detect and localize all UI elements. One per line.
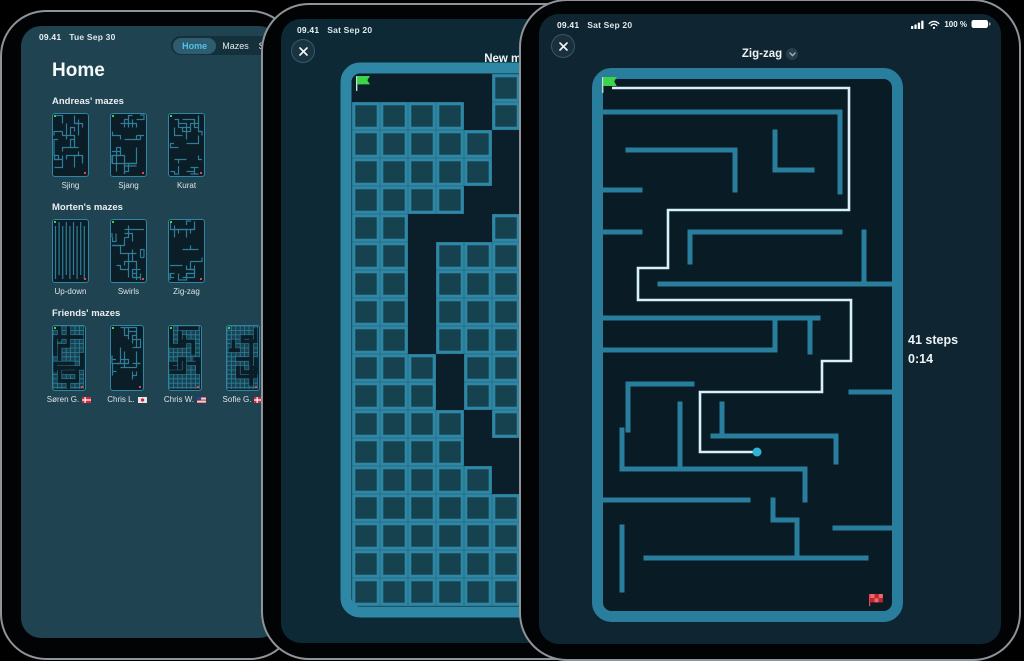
maze-preview-icon: [227, 326, 258, 389]
maze-thumbnail-art: [110, 325, 144, 391]
maze-thumbnail-label: Søren G.: [47, 395, 91, 404]
home-content: Home Andreas' mazesSjingSjangKuratMorten…: [52, 60, 275, 416]
maze-thumbnail-art: [168, 325, 202, 391]
maze-thumbnail-item[interactable]: Sjang: [110, 113, 147, 190]
maze-preview-icon: [111, 220, 145, 281]
maze-thumbnail-item[interactable]: Zig-zag: [168, 219, 205, 296]
thumbnail-row: SjingSjangKurat: [52, 113, 275, 190]
maze-thumbnail-art: [226, 325, 260, 391]
maze-thumbnail-item[interactable]: Up-down: [52, 219, 89, 296]
maze-thumbnail-label: Chris L.: [107, 395, 147, 404]
status-date: Tue Sep 30: [69, 32, 115, 42]
maze-thumbnail-item[interactable]: Sjing: [52, 113, 89, 190]
play-screen: 09.41 Sat Sep 20 100 %: [539, 14, 1001, 644]
maze-thumbnail-art: [110, 219, 147, 283]
section-header: Andreas' mazes: [52, 96, 275, 107]
page-title: Home: [52, 60, 275, 82]
game-stats: 41 steps 0:14: [908, 331, 958, 369]
maze-thumbnail-label: Sjing: [62, 181, 80, 190]
status-time: 09.41: [39, 32, 61, 42]
maze-preview-icon: [169, 114, 203, 175]
status-bar: 09.41 Tue Sep 30: [39, 32, 116, 42]
flag-us-icon: [197, 397, 206, 403]
maze-thumbnail-label: Sofie G.: [223, 395, 264, 404]
section-header: Morten's mazes: [52, 202, 275, 213]
steps-counter: 41 steps: [908, 331, 958, 350]
maze-preview-icon: [53, 114, 87, 175]
flag-jp-icon: [138, 397, 147, 403]
maze-thumbnail-art: [52, 113, 89, 177]
maze-thumbnail-item[interactable]: Chris L.: [110, 325, 144, 404]
maze-thumbnail-label: Sjang: [118, 181, 138, 190]
timer: 0:14: [908, 350, 958, 369]
section-header: Friends' mazes: [52, 308, 275, 319]
tab-mazes[interactable]: Mazes: [216, 38, 254, 54]
maze-thumbnail-art: [168, 219, 205, 283]
maze-thumbnail-art: [52, 219, 89, 283]
home-screen: 09.41 Tue Sep 30 Home Mazes S Home Andre…: [21, 26, 279, 638]
maze-play-canvas[interactable]: [539, 14, 1001, 644]
maze-thumbnail-art: [168, 113, 205, 177]
maze-thumbnail-art: [110, 113, 147, 177]
maze-preview-icon: [53, 326, 84, 389]
maze-thumbnail-label: Up-down: [54, 287, 86, 296]
thumbnail-row: Søren G.Chris L.Chris W.Sofie G.: [52, 325, 275, 404]
thumbnail-row: Up-downSwirlsZig-zag: [52, 219, 275, 296]
maze-thumbnail-label: Chris W.: [164, 395, 206, 404]
maze-thumbnail-item[interactable]: Kurat: [168, 113, 205, 190]
maze-preview-icon: [169, 220, 203, 281]
screenshot-stage: 09.41 Tue Sep 30 Home Mazes S Home Andre…: [0, 0, 1024, 661]
maze-preview-icon: [111, 326, 142, 389]
maze-preview-icon: [169, 326, 200, 389]
ipad-play-device: 09.41 Sat Sep 20 100 %: [521, 1, 1019, 659]
maze-thumbnail-item[interactable]: Swirls: [110, 219, 147, 296]
maze-preview-icon: [111, 114, 145, 175]
maze-thumbnail-art: [52, 325, 86, 391]
maze-thumbnail-item[interactable]: Søren G.: [52, 325, 86, 404]
maze-thumbnail-label: Kurat: [177, 181, 196, 190]
maze-preview-icon: [53, 220, 87, 281]
flag-dk-icon: [82, 397, 91, 403]
tab-home[interactable]: Home: [173, 38, 216, 54]
maze-sections: Andreas' mazesSjingSjangKuratMorten's ma…: [52, 96, 275, 404]
maze-thumbnail-label: Swirls: [118, 287, 139, 296]
maze-thumbnail-item[interactable]: Chris W.: [168, 325, 202, 404]
maze-thumbnail-item[interactable]: Sofie G.: [226, 325, 260, 404]
ipad-home-device: 09.41 Tue Sep 30 Home Mazes S Home Andre…: [2, 12, 294, 658]
maze-thumbnail-label: Zig-zag: [173, 287, 200, 296]
